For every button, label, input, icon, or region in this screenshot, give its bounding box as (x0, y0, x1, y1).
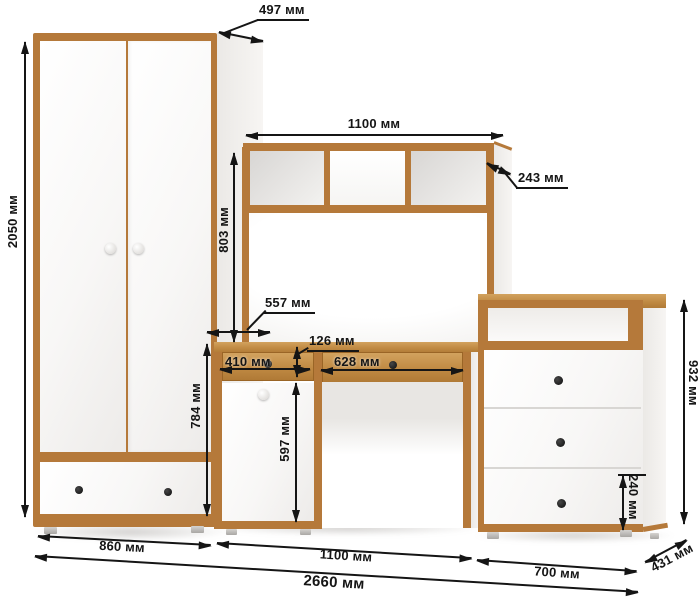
dim-desk-depth-label: 557 мм (263, 296, 315, 314)
hutch-shelf-back-left (250, 151, 324, 205)
dim-desk-width-label: 1100 мм (319, 547, 372, 564)
dim-hutch-depth-label: 243 мм (516, 171, 568, 189)
dim-desk-drawer-height-label: 126 мм (307, 334, 359, 352)
dim-desk-door-height-label: 597 мм (277, 416, 292, 462)
hutch-shelf-open-middle (330, 151, 405, 205)
dim-chest-height-label: 932 мм (686, 360, 700, 406)
wardrobe-drawer (40, 462, 211, 514)
dim-wardrobe-height-arrow (24, 42, 26, 517)
dim-total-width-label: 2660 мм (303, 573, 365, 592)
desk-foot (226, 529, 237, 535)
chest-foot (487, 532, 499, 539)
hutch-shelf-back-right (411, 151, 486, 205)
desk-cabinet-door-knob (258, 389, 269, 400)
wardrobe-door-knob-left (105, 243, 116, 254)
desk-drawer-right-knob (389, 361, 397, 369)
dim-hutch-width-arrow (246, 134, 503, 136)
desk-cabinet-door (222, 383, 314, 521)
dim-chest-drawer-label: 240 мм (626, 474, 641, 520)
dim-wardrobe-height-label: 2050 мм (5, 195, 20, 248)
hutch-left-post (242, 147, 249, 343)
chest-drawer-divider (482, 407, 641, 409)
chest-drawer-divider (482, 467, 641, 469)
desk-pedestal-right-edge (314, 352, 322, 528)
chest-drawer-knob-2 (556, 438, 565, 447)
wardrobe-drawer-knob-left (75, 486, 83, 494)
desk-pedestal-left-edge (214, 352, 222, 528)
chest-side-panel (643, 300, 666, 532)
dim-wardrobe-width-label: 860 мм (99, 539, 145, 555)
dim-desk-height-label: 784 мм (188, 383, 203, 429)
dim-desk-drawer-left-arrow (220, 368, 310, 370)
desk-foot (300, 529, 311, 535)
furniture-dimension-diagram: 2050 мм 497 мм 1100 мм 243 мм 803 мм 557… (0, 0, 700, 598)
dim-hutch-height-arrow (233, 153, 235, 342)
chest-drawer-knob-1 (554, 376, 563, 385)
wardrobe-drawer-knob-right (164, 488, 172, 496)
dim-chest-height-arrow (683, 300, 685, 524)
dim-wardrobe-depth-label: 497 мм (257, 3, 309, 21)
chest-niche-back (488, 308, 628, 341)
wardrobe-foot (191, 526, 204, 533)
chest-foot (620, 530, 632, 537)
dim-desk-drawer-right-label: 628 мм (334, 355, 380, 369)
desk-knee-space (322, 382, 463, 528)
chest-left-edge (478, 300, 484, 532)
chest-drawer-knob-3 (557, 499, 566, 508)
desk-pedestal-bottom (214, 521, 322, 529)
chest-foot (650, 533, 659, 539)
dim-hutch-width-label: 1100 мм (348, 117, 400, 131)
dim-hutch-height-label: 803 мм (216, 207, 231, 253)
wardrobe-door-knob-right (133, 243, 144, 254)
dim-chest-width-label: 700 мм (534, 564, 581, 581)
dim-desk-height-arrow (206, 344, 208, 516)
hutch-back-wall (249, 212, 487, 343)
dim-chest-drawer-arrow (622, 476, 624, 530)
dim-desk-depth-arrow (207, 331, 270, 333)
dim-desk-door-height-arrow (295, 383, 297, 522)
dim-desk-drawer-right-arrow (321, 369, 463, 371)
